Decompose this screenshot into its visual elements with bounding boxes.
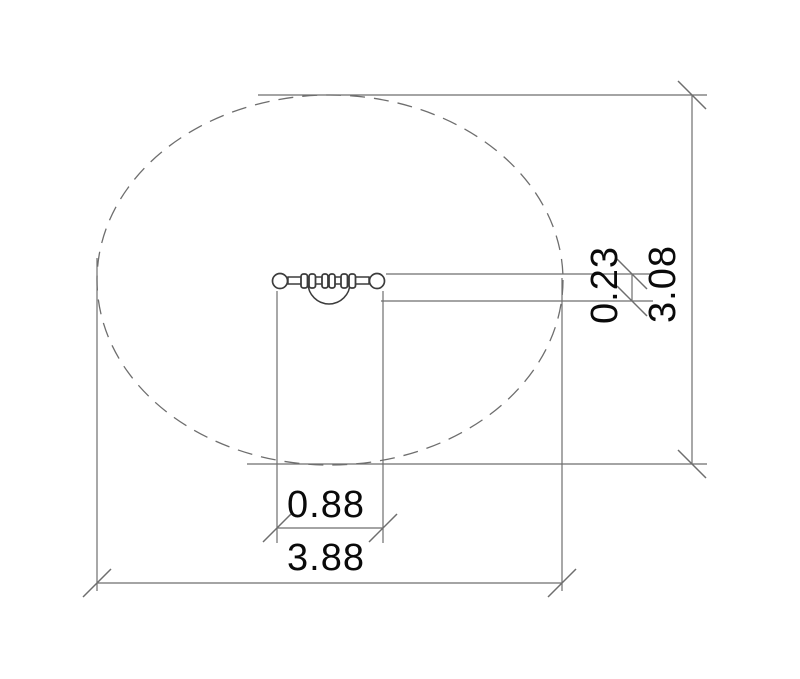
left-post-circle [273,274,288,289]
dim-label-bar-depth: 0.23 [586,246,624,324]
extension-lines [97,95,707,591]
clamp [309,274,316,288]
bar-clamps [301,274,356,288]
clamp [329,274,335,288]
dimension-ticks [83,81,706,597]
dim-label-inner-width: 0.88 [287,486,365,524]
clamp [349,274,356,288]
clamp [341,274,348,288]
clamp [301,274,308,288]
clamp [322,274,328,288]
drawing-linework [0,0,800,679]
dim-label-overall-width: 3.88 [287,539,365,577]
dimension-lines [97,95,692,583]
right-post-circle [370,274,385,289]
dim-label-overall-height: 3.08 [644,245,682,323]
drawing-canvas: 0.88 3.88 0.23 3.08 [0,0,800,679]
equipment-plan-view [273,274,385,304]
